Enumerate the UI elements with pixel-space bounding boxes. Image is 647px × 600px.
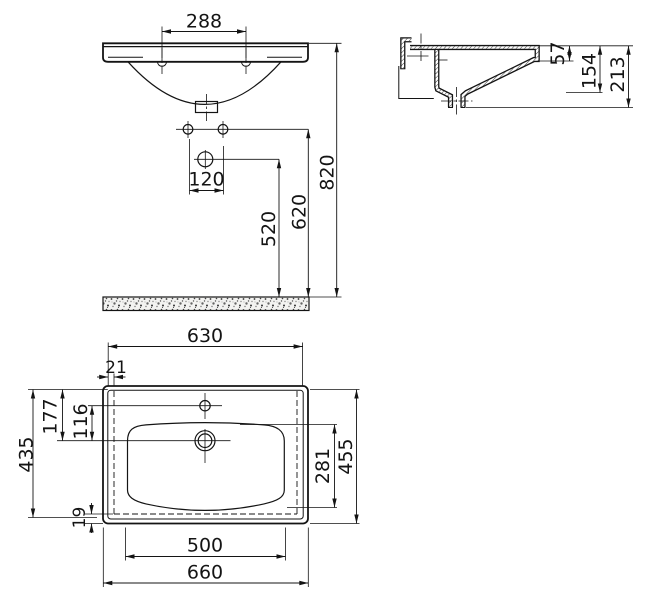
floor-hatch xyxy=(103,297,309,311)
plan-overall-width-label: 660 xyxy=(187,562,223,584)
front-fixing-hole-spacing-label: 120 xyxy=(188,169,224,191)
side-basin-depth-label: 154 xyxy=(579,53,601,89)
plan-inner-width-label: 630 xyxy=(187,325,223,347)
plan-faucet-to-drain-label: 116 xyxy=(70,403,92,439)
washbasin-drawing: 288 120 520 620 820 xyxy=(0,0,647,600)
side-section-view: 57 154 213 xyxy=(399,34,633,116)
plan-bowl-length-label: 281 xyxy=(312,448,334,484)
side-overall-depth-label: 213 xyxy=(607,56,629,92)
side-bracket-outline xyxy=(399,66,434,99)
side-front-edge-depth-label: 57 xyxy=(547,41,569,65)
front-fixing-height-label: 620 xyxy=(289,194,311,230)
front-tap-hole-spacing-label: 288 xyxy=(186,11,222,33)
front-view: 288 120 520 620 820 xyxy=(103,11,342,311)
plan-bowl-outline xyxy=(128,423,285,511)
front-bowl-curve xyxy=(128,62,281,105)
plan-edge-gap-side-label: 21 xyxy=(105,358,127,378)
plan-inner-outline xyxy=(108,390,303,519)
plan-overall-depth-label: 455 xyxy=(335,438,357,474)
plan-edge-gap-bottom-label: 19 xyxy=(70,507,90,529)
plan-bowl-width-label: 500 xyxy=(187,535,223,557)
plan-outer-outline xyxy=(103,386,308,524)
plan-back-to-drain-label: 177 xyxy=(40,398,62,434)
plan-view: 630 21 435 177 116 19 281 455 xyxy=(16,325,360,587)
side-back-upstand-section xyxy=(400,40,411,69)
front-rim-height-label: 820 xyxy=(317,154,339,190)
front-drain-height-label: 520 xyxy=(258,211,280,247)
technical-drawing-page: 288 120 520 620 820 xyxy=(0,0,647,600)
plan-inner-depth-label: 435 xyxy=(16,436,38,472)
